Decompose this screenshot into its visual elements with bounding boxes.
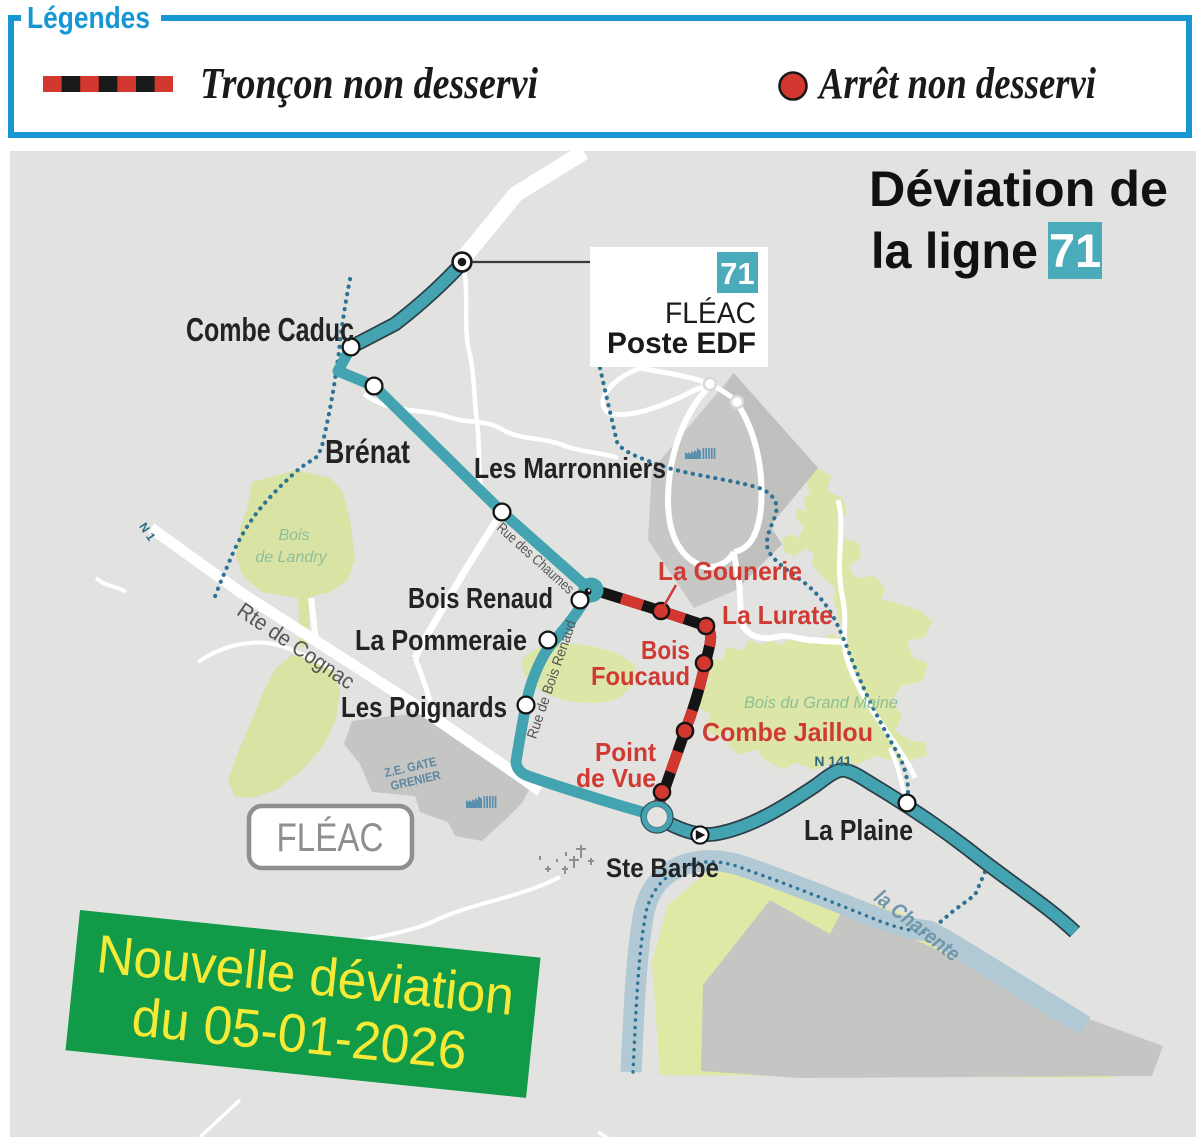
svg-text:Brénat: Brénat: [325, 433, 410, 470]
svg-text:71: 71: [1049, 224, 1101, 277]
svg-text:Les Marronniers: Les Marronniers: [474, 453, 666, 485]
svg-text:La Lurate: La Lurate: [722, 600, 833, 630]
svg-text:Arrêt non desservi: Arrêt non desservi: [817, 59, 1097, 108]
svg-text:la ligne: la ligne: [871, 223, 1038, 279]
svg-text:Les Poignards: Les Poignards: [341, 692, 507, 724]
svg-text:de Vue: de Vue: [576, 763, 656, 793]
svg-text:de Landry: de Landry: [255, 549, 327, 566]
svg-text:Déviation de: Déviation de: [869, 161, 1168, 217]
svg-text:Bois: Bois: [278, 527, 309, 544]
svg-text:Bois du Grand Maine: Bois du Grand Maine: [744, 693, 898, 712]
svg-text:La Plaine: La Plaine: [804, 815, 913, 847]
svg-text:Combe Caduc: Combe Caduc: [186, 311, 354, 348]
svg-text:La Pommeraie: La Pommeraie: [355, 625, 527, 657]
svg-text:Bois Renaud: Bois Renaud: [408, 583, 553, 615]
svg-text:FLÉAC: FLÉAC: [277, 815, 384, 860]
svg-text:71: 71: [720, 256, 754, 291]
svg-text:Foucaud: Foucaud: [591, 661, 690, 691]
svg-text:Légendes: Légendes: [27, 0, 150, 35]
svg-text:Ste Barbe: Ste Barbe: [606, 853, 719, 883]
svg-text:Poste EDF: Poste EDF: [607, 327, 756, 360]
svg-text:N 141: N 141: [814, 753, 852, 769]
svg-text:Combe Jaillou: Combe Jaillou: [702, 717, 873, 747]
svg-text:La Gounerie: La Gounerie: [658, 556, 802, 586]
svg-text:Tronçon non desservi: Tronçon non desservi: [200, 59, 539, 108]
svg-text:FLÉAC: FLÉAC: [665, 297, 756, 330]
